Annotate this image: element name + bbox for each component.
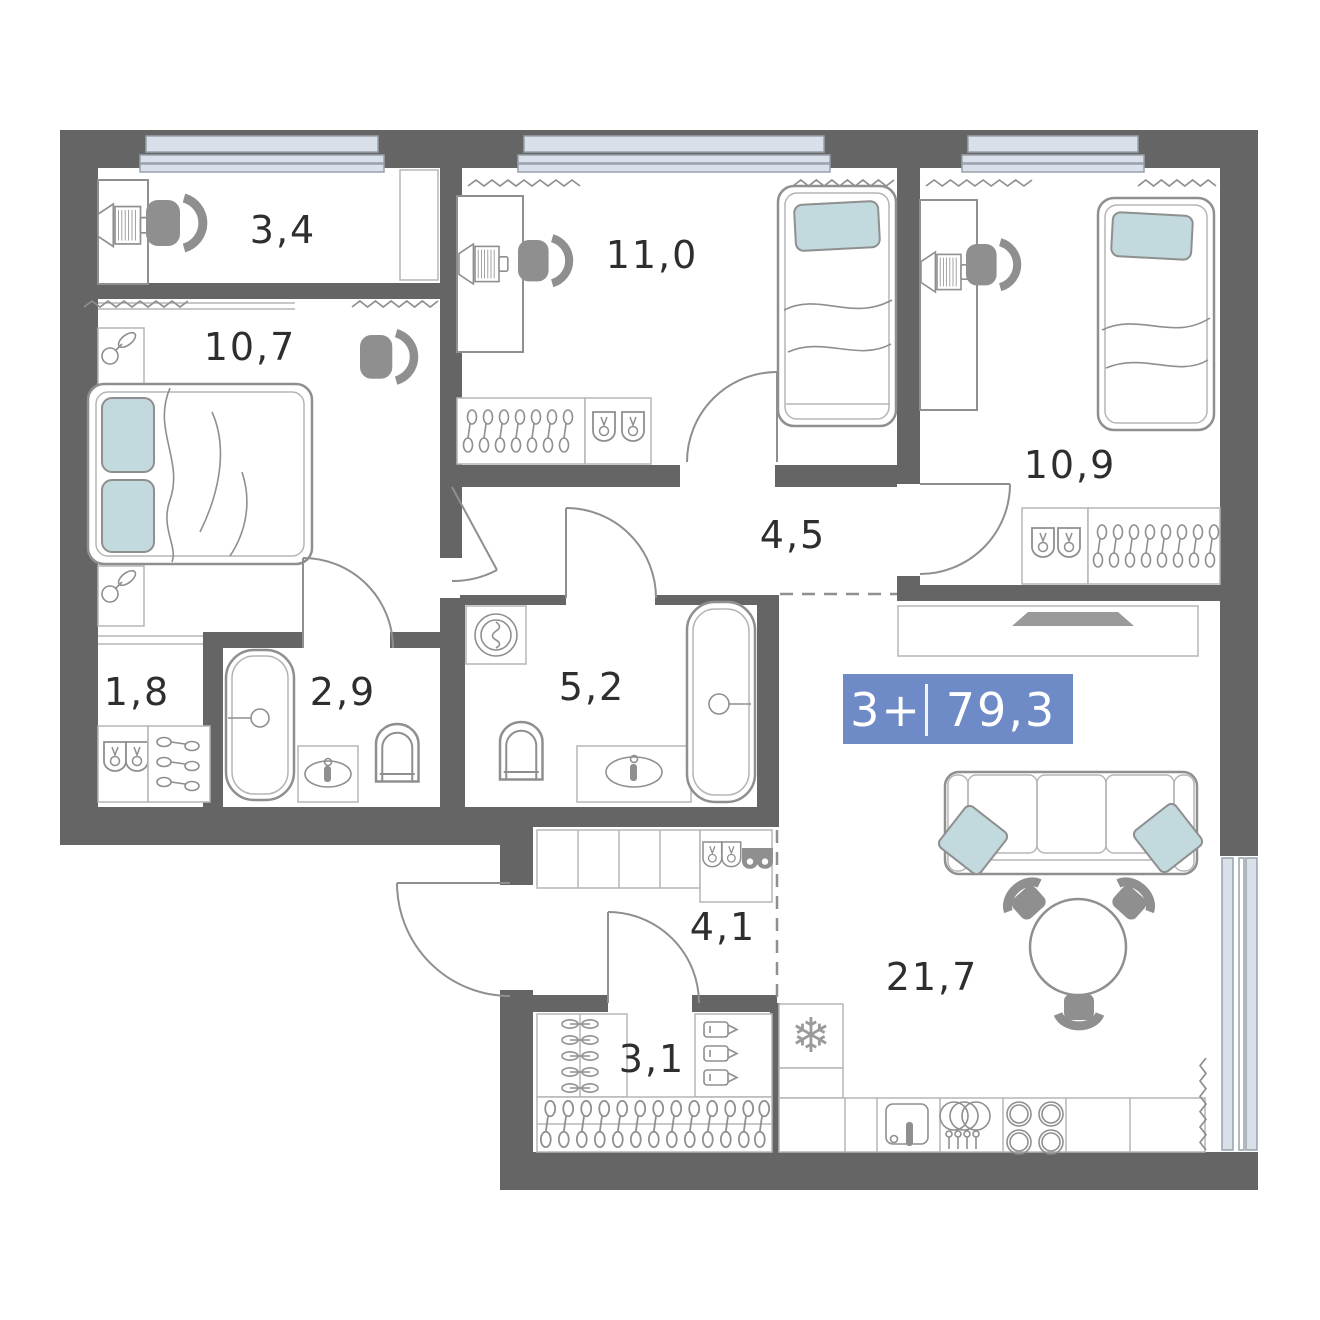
room-label-entry-hall: 4,1	[690, 905, 756, 949]
shoe-icon	[126, 742, 148, 771]
dining-table	[1030, 899, 1126, 995]
door-bathroom-2	[566, 508, 656, 598]
pillow	[102, 398, 154, 472]
balcony-glazing	[1220, 856, 1258, 1152]
badge-total-area: 79,3	[946, 683, 1056, 737]
pillow	[1111, 212, 1193, 260]
room-label-bathroom-1: 2,9	[310, 670, 376, 714]
vent-squiggle	[84, 301, 188, 307]
door-bathroom-1	[303, 558, 393, 648]
shoe-icon	[104, 742, 126, 771]
room-label-bedroom-1: 10,7	[204, 325, 297, 369]
room-label-bedroom-2: 11,0	[606, 233, 699, 277]
badge-rooms-count: 3+	[850, 683, 922, 737]
room-label-hallway: 4,5	[760, 513, 826, 557]
dining-chair-icon	[1058, 994, 1100, 1026]
shoe-icon	[1058, 528, 1080, 557]
vent-squiggle	[926, 180, 1032, 186]
floorplan-svg: ❄	[0, 0, 1320, 1320]
shoe-icon	[757, 848, 773, 869]
bedroom-3-room	[920, 198, 1220, 584]
desk-chair-icon	[146, 198, 203, 248]
door-storage	[608, 912, 699, 1003]
bedroom-2-room	[457, 186, 896, 464]
desk-chair-icon	[518, 238, 569, 283]
badge-divider	[925, 684, 928, 736]
floor-plan-page: ❄	[0, 0, 1320, 1320]
shoe-icon	[622, 412, 644, 441]
room-label-bedroom-3: 10,9	[1024, 443, 1117, 487]
furniture: ❄	[88, 170, 1220, 1154]
pillow	[102, 480, 154, 552]
tv-icon	[1012, 612, 1134, 626]
room-label-study: 3,4	[250, 208, 316, 252]
desk-chair-icon	[966, 242, 1017, 287]
entry-hall-cabinets	[537, 830, 773, 902]
kitchen: ❄	[779, 1004, 1205, 1154]
room-label-closet: 1,8	[104, 670, 170, 714]
room-label-storage: 3,1	[619, 1037, 685, 1081]
toilet-icon	[376, 724, 419, 782]
shoe-icon	[593, 412, 615, 441]
shoe-icon	[742, 848, 758, 869]
fridge-snowflake-icon: ❄	[791, 1008, 831, 1064]
room-label-bathroom-2: 5,2	[559, 665, 625, 709]
pillow	[794, 201, 880, 251]
door-bedroom-2	[687, 372, 777, 462]
shoe-icon	[703, 842, 722, 867]
room-label-living-kitchen: 21,7	[886, 955, 979, 999]
toilet-icon	[500, 722, 543, 780]
vent-squiggle	[352, 301, 438, 307]
tv-stand	[898, 606, 1198, 656]
closet-room	[98, 726, 210, 802]
chair-icon	[360, 333, 414, 381]
apartment-badge: 3+ 79,3	[843, 674, 1073, 744]
door-entrance	[397, 883, 510, 996]
storage-room	[537, 1014, 772, 1152]
vent-squiggle	[468, 180, 580, 186]
shoe-icon	[722, 842, 741, 867]
door-bedroom-3	[920, 484, 1010, 574]
bedroom-1-room	[88, 328, 414, 644]
shoe-icon	[1032, 528, 1054, 557]
vent-squiggle	[1138, 180, 1216, 186]
